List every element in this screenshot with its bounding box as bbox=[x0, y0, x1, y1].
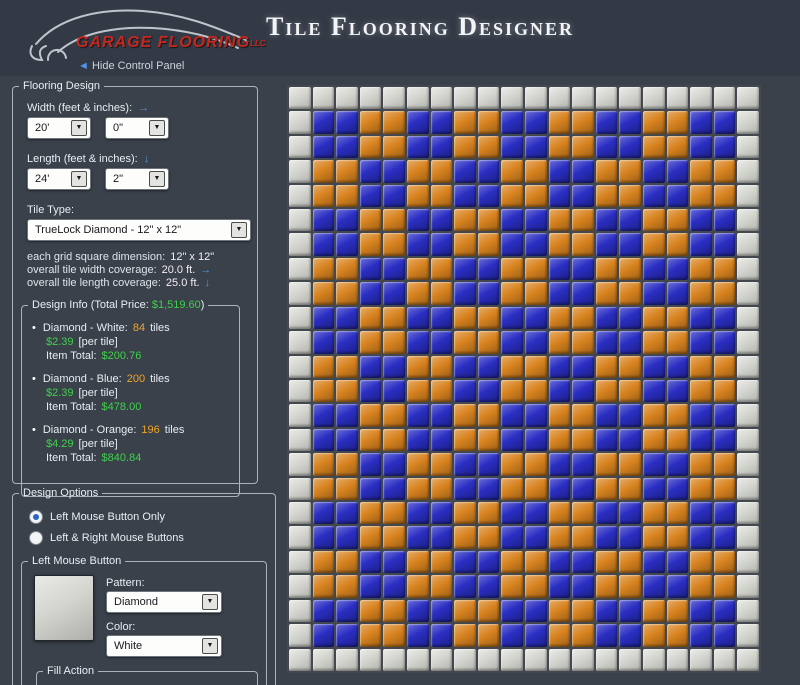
grid-tile-r9c1[interactable] bbox=[313, 307, 335, 329]
grid-tile-r8c0[interactable] bbox=[289, 282, 311, 304]
grid-tile-r8c11[interactable] bbox=[549, 282, 571, 304]
grid-tile-r19c18[interactable] bbox=[714, 551, 736, 573]
grid-tile-r4c10[interactable] bbox=[525, 185, 547, 207]
grid-tile-r11c16[interactable] bbox=[667, 356, 689, 378]
grid-tile-r8c10[interactable] bbox=[525, 282, 547, 304]
grid-tile-r13c16[interactable] bbox=[667, 404, 689, 426]
grid-tile-r8c14[interactable] bbox=[619, 282, 641, 304]
grid-tile-r14c10[interactable] bbox=[525, 429, 547, 451]
grid-tile-r22c11[interactable] bbox=[549, 624, 571, 646]
grid-tile-r18c3[interactable] bbox=[360, 526, 382, 548]
grid-tile-r14c8[interactable] bbox=[478, 429, 500, 451]
grid-tile-r16c10[interactable] bbox=[525, 478, 547, 500]
grid-tile-r22c9[interactable] bbox=[501, 624, 523, 646]
grid-tile-r9c14[interactable] bbox=[619, 307, 641, 329]
grid-tile-r20c10[interactable] bbox=[525, 575, 547, 597]
grid-tile-r12c2[interactable] bbox=[336, 380, 358, 402]
grid-tile-r6c8[interactable] bbox=[478, 233, 500, 255]
grid-tile-r7c7[interactable] bbox=[454, 258, 476, 280]
grid-tile-r0c14[interactable] bbox=[619, 87, 641, 109]
grid-tile-r0c1[interactable] bbox=[313, 87, 335, 109]
grid-tile-r11c0[interactable] bbox=[289, 356, 311, 378]
grid-tile-r3c13[interactable] bbox=[596, 160, 618, 182]
grid-tile-r4c8[interactable] bbox=[478, 185, 500, 207]
grid-tile-r6c5[interactable] bbox=[407, 233, 429, 255]
grid-tile-r0c15[interactable] bbox=[643, 87, 665, 109]
grid-tile-r18c1[interactable] bbox=[313, 526, 335, 548]
grid-tile-r4c1[interactable] bbox=[313, 185, 335, 207]
grid-tile-r23c11[interactable] bbox=[549, 649, 571, 671]
grid-tile-r9c8[interactable] bbox=[478, 307, 500, 329]
grid-tile-r20c18[interactable] bbox=[714, 575, 736, 597]
hide-control-panel-link[interactable]: ◄ Hide Control Panel bbox=[78, 60, 184, 72]
grid-tile-r13c19[interactable] bbox=[737, 404, 759, 426]
grid-tile-r9c3[interactable] bbox=[360, 307, 382, 329]
grid-tile-r1c4[interactable] bbox=[383, 111, 405, 133]
grid-tile-r19c19[interactable] bbox=[737, 551, 759, 573]
grid-tile-r8c4[interactable] bbox=[383, 282, 405, 304]
radio-button-icon[interactable] bbox=[29, 510, 43, 524]
grid-tile-r13c5[interactable] bbox=[407, 404, 429, 426]
grid-tile-r20c13[interactable] bbox=[596, 575, 618, 597]
grid-tile-r15c18[interactable] bbox=[714, 453, 736, 475]
grid-tile-r19c0[interactable] bbox=[289, 551, 311, 573]
grid-tile-r2c19[interactable] bbox=[737, 136, 759, 158]
grid-tile-r11c5[interactable] bbox=[407, 356, 429, 378]
grid-tile-r20c7[interactable] bbox=[454, 575, 476, 597]
grid-tile-r1c13[interactable] bbox=[596, 111, 618, 133]
grid-tile-r0c16[interactable] bbox=[667, 87, 689, 109]
grid-tile-r20c11[interactable] bbox=[549, 575, 571, 597]
grid-tile-r12c12[interactable] bbox=[572, 380, 594, 402]
grid-tile-r3c14[interactable] bbox=[619, 160, 641, 182]
grid-tile-r4c15[interactable] bbox=[643, 185, 665, 207]
grid-tile-r17c1[interactable] bbox=[313, 502, 335, 524]
grid-tile-r12c10[interactable] bbox=[525, 380, 547, 402]
grid-tile-r0c8[interactable] bbox=[478, 87, 500, 109]
grid-tile-r12c18[interactable] bbox=[714, 380, 736, 402]
grid-tile-r0c4[interactable] bbox=[383, 87, 405, 109]
grid-tile-r9c2[interactable] bbox=[336, 307, 358, 329]
grid-tile-r3c15[interactable] bbox=[643, 160, 665, 182]
grid-tile-r7c10[interactable] bbox=[525, 258, 547, 280]
grid-tile-r9c9[interactable] bbox=[501, 307, 523, 329]
grid-tile-r10c4[interactable] bbox=[383, 331, 405, 353]
grid-tile-r14c19[interactable] bbox=[737, 429, 759, 451]
grid-tile-r6c7[interactable] bbox=[454, 233, 476, 255]
grid-tile-r14c4[interactable] bbox=[383, 429, 405, 451]
grid-tile-r3c1[interactable] bbox=[313, 160, 335, 182]
grid-tile-r9c19[interactable] bbox=[737, 307, 759, 329]
grid-tile-r16c8[interactable] bbox=[478, 478, 500, 500]
grid-tile-r21c0[interactable] bbox=[289, 600, 311, 622]
grid-tile-r2c18[interactable] bbox=[714, 136, 736, 158]
grid-tile-r7c11[interactable] bbox=[549, 258, 571, 280]
grid-tile-r2c0[interactable] bbox=[289, 136, 311, 158]
grid-tile-r17c11[interactable] bbox=[549, 502, 571, 524]
grid-tile-r21c8[interactable] bbox=[478, 600, 500, 622]
grid-tile-r18c0[interactable] bbox=[289, 526, 311, 548]
grid-tile-r17c4[interactable] bbox=[383, 502, 405, 524]
grid-tile-r12c15[interactable] bbox=[643, 380, 665, 402]
grid-tile-r4c17[interactable] bbox=[690, 185, 712, 207]
grid-tile-r21c1[interactable] bbox=[313, 600, 335, 622]
grid-tile-r6c14[interactable] bbox=[619, 233, 641, 255]
grid-tile-r23c12[interactable] bbox=[572, 649, 594, 671]
grid-tile-r9c10[interactable] bbox=[525, 307, 547, 329]
grid-tile-r5c8[interactable] bbox=[478, 209, 500, 231]
grid-tile-r11c18[interactable] bbox=[714, 356, 736, 378]
grid-tile-r18c17[interactable] bbox=[690, 526, 712, 548]
grid-tile-r2c15[interactable] bbox=[643, 136, 665, 158]
grid-tile-r9c7[interactable] bbox=[454, 307, 476, 329]
grid-tile-r1c5[interactable] bbox=[407, 111, 429, 133]
length-feet-dropdown[interactable]: 24' ▼ bbox=[27, 168, 91, 190]
grid-tile-r2c1[interactable] bbox=[313, 136, 335, 158]
grid-tile-r11c3[interactable] bbox=[360, 356, 382, 378]
grid-tile-r22c13[interactable] bbox=[596, 624, 618, 646]
grid-tile-r4c4[interactable] bbox=[383, 185, 405, 207]
grid-tile-r19c17[interactable] bbox=[690, 551, 712, 573]
grid-tile-r12c16[interactable] bbox=[667, 380, 689, 402]
grid-tile-r1c1[interactable] bbox=[313, 111, 335, 133]
grid-tile-r10c0[interactable] bbox=[289, 331, 311, 353]
radio-left-right-mouse[interactable]: Left & Right Mouse Buttons bbox=[29, 531, 269, 545]
grid-tile-r14c17[interactable] bbox=[690, 429, 712, 451]
grid-tile-r0c6[interactable] bbox=[431, 87, 453, 109]
grid-tile-r11c11[interactable] bbox=[549, 356, 571, 378]
grid-tile-r5c3[interactable] bbox=[360, 209, 382, 231]
grid-tile-r13c7[interactable] bbox=[454, 404, 476, 426]
grid-tile-r3c10[interactable] bbox=[525, 160, 547, 182]
grid-tile-r13c4[interactable] bbox=[383, 404, 405, 426]
grid-tile-r18c5[interactable] bbox=[407, 526, 429, 548]
grid-tile-r13c1[interactable] bbox=[313, 404, 335, 426]
grid-tile-r14c15[interactable] bbox=[643, 429, 665, 451]
grid-tile-r5c6[interactable] bbox=[431, 209, 453, 231]
grid-tile-r19c2[interactable] bbox=[336, 551, 358, 573]
grid-tile-r11c2[interactable] bbox=[336, 356, 358, 378]
grid-tile-r2c2[interactable] bbox=[336, 136, 358, 158]
grid-tile-r16c6[interactable] bbox=[431, 478, 453, 500]
grid-tile-r11c7[interactable] bbox=[454, 356, 476, 378]
grid-tile-r17c9[interactable] bbox=[501, 502, 523, 524]
grid-tile-r16c19[interactable] bbox=[737, 478, 759, 500]
grid-tile-r15c12[interactable] bbox=[572, 453, 594, 475]
grid-tile-r21c5[interactable] bbox=[407, 600, 429, 622]
grid-tile-r15c6[interactable] bbox=[431, 453, 453, 475]
grid-tile-r14c18[interactable] bbox=[714, 429, 736, 451]
grid-tile-r5c14[interactable] bbox=[619, 209, 641, 231]
grid-tile-r7c19[interactable] bbox=[737, 258, 759, 280]
grid-tile-r15c0[interactable] bbox=[289, 453, 311, 475]
grid-tile-r3c18[interactable] bbox=[714, 160, 736, 182]
grid-tile-r4c16[interactable] bbox=[667, 185, 689, 207]
grid-tile-r23c16[interactable] bbox=[667, 649, 689, 671]
grid-tile-r7c12[interactable] bbox=[572, 258, 594, 280]
grid-tile-r20c9[interactable] bbox=[501, 575, 523, 597]
grid-tile-r14c14[interactable] bbox=[619, 429, 641, 451]
grid-tile-r9c6[interactable] bbox=[431, 307, 453, 329]
grid-tile-r13c17[interactable] bbox=[690, 404, 712, 426]
grid-tile-r11c19[interactable] bbox=[737, 356, 759, 378]
grid-tile-r6c17[interactable] bbox=[690, 233, 712, 255]
grid-tile-r4c6[interactable] bbox=[431, 185, 453, 207]
grid-tile-r20c15[interactable] bbox=[643, 575, 665, 597]
tile-type-dropdown[interactable]: TrueLock Diamond - 12" x 12" ▼ bbox=[27, 219, 251, 241]
grid-tile-r18c14[interactable] bbox=[619, 526, 641, 548]
grid-tile-r19c6[interactable] bbox=[431, 551, 453, 573]
grid-tile-r19c1[interactable] bbox=[313, 551, 335, 573]
grid-tile-r10c10[interactable] bbox=[525, 331, 547, 353]
grid-tile-r6c1[interactable] bbox=[313, 233, 335, 255]
grid-tile-r10c2[interactable] bbox=[336, 331, 358, 353]
grid-tile-r9c16[interactable] bbox=[667, 307, 689, 329]
grid-tile-r22c15[interactable] bbox=[643, 624, 665, 646]
grid-tile-r4c2[interactable] bbox=[336, 185, 358, 207]
grid-tile-r1c2[interactable] bbox=[336, 111, 358, 133]
grid-tile-r18c10[interactable] bbox=[525, 526, 547, 548]
grid-tile-r6c19[interactable] bbox=[737, 233, 759, 255]
grid-tile-r6c3[interactable] bbox=[360, 233, 382, 255]
grid-tile-r20c3[interactable] bbox=[360, 575, 382, 597]
grid-tile-r7c3[interactable] bbox=[360, 258, 382, 280]
grid-tile-r12c19[interactable] bbox=[737, 380, 759, 402]
grid-tile-r3c7[interactable] bbox=[454, 160, 476, 182]
grid-tile-r1c0[interactable] bbox=[289, 111, 311, 133]
grid-tile-r20c2[interactable] bbox=[336, 575, 358, 597]
grid-tile-r23c5[interactable] bbox=[407, 649, 429, 671]
grid-tile-r3c12[interactable] bbox=[572, 160, 594, 182]
grid-tile-r22c3[interactable] bbox=[360, 624, 382, 646]
grid-tile-r17c17[interactable] bbox=[690, 502, 712, 524]
grid-tile-r2c11[interactable] bbox=[549, 136, 571, 158]
grid-tile-r11c15[interactable] bbox=[643, 356, 665, 378]
grid-tile-r15c7[interactable] bbox=[454, 453, 476, 475]
grid-tile-r20c12[interactable] bbox=[572, 575, 594, 597]
grid-tile-r23c2[interactable] bbox=[336, 649, 358, 671]
grid-tile-r7c16[interactable] bbox=[667, 258, 689, 280]
grid-tile-r20c8[interactable] bbox=[478, 575, 500, 597]
grid-tile-r7c13[interactable] bbox=[596, 258, 618, 280]
grid-tile-r19c3[interactable] bbox=[360, 551, 382, 573]
pattern-dropdown[interactable]: Diamond ▼ bbox=[106, 591, 222, 613]
grid-tile-r6c0[interactable] bbox=[289, 233, 311, 255]
grid-tile-r11c12[interactable] bbox=[572, 356, 594, 378]
grid-tile-r16c12[interactable] bbox=[572, 478, 594, 500]
grid-tile-r6c6[interactable] bbox=[431, 233, 453, 255]
grid-tile-r20c0[interactable] bbox=[289, 575, 311, 597]
grid-tile-r3c4[interactable] bbox=[383, 160, 405, 182]
grid-tile-r5c9[interactable] bbox=[501, 209, 523, 231]
grid-tile-r2c12[interactable] bbox=[572, 136, 594, 158]
grid-tile-r10c14[interactable] bbox=[619, 331, 641, 353]
grid-tile-r4c7[interactable] bbox=[454, 185, 476, 207]
grid-tile-r18c16[interactable] bbox=[667, 526, 689, 548]
grid-tile-r14c5[interactable] bbox=[407, 429, 429, 451]
grid-tile-r7c2[interactable] bbox=[336, 258, 358, 280]
grid-tile-r10c12[interactable] bbox=[572, 331, 594, 353]
grid-tile-r6c9[interactable] bbox=[501, 233, 523, 255]
grid-tile-r5c4[interactable] bbox=[383, 209, 405, 231]
grid-tile-r13c6[interactable] bbox=[431, 404, 453, 426]
grid-tile-r4c12[interactable] bbox=[572, 185, 594, 207]
grid-tile-r7c1[interactable] bbox=[313, 258, 335, 280]
grid-tile-r19c13[interactable] bbox=[596, 551, 618, 573]
grid-tile-r18c15[interactable] bbox=[643, 526, 665, 548]
grid-tile-r7c15[interactable] bbox=[643, 258, 665, 280]
grid-tile-r9c0[interactable] bbox=[289, 307, 311, 329]
grid-tile-r2c3[interactable] bbox=[360, 136, 382, 158]
grid-tile-r21c16[interactable] bbox=[667, 600, 689, 622]
width-inches-dropdown[interactable]: 0" ▼ bbox=[105, 117, 169, 139]
grid-tile-r1c9[interactable] bbox=[501, 111, 523, 133]
grid-tile-r9c13[interactable] bbox=[596, 307, 618, 329]
grid-tile-r18c11[interactable] bbox=[549, 526, 571, 548]
dropdown-arrow-icon[interactable]: ▼ bbox=[202, 638, 218, 654]
grid-tile-r12c0[interactable] bbox=[289, 380, 311, 402]
grid-tile-r22c0[interactable] bbox=[289, 624, 311, 646]
grid-tile-r14c2[interactable] bbox=[336, 429, 358, 451]
grid-tile-r17c2[interactable] bbox=[336, 502, 358, 524]
grid-tile-r15c17[interactable] bbox=[690, 453, 712, 475]
grid-tile-r11c13[interactable] bbox=[596, 356, 618, 378]
grid-tile-r7c0[interactable] bbox=[289, 258, 311, 280]
grid-tile-r15c2[interactable] bbox=[336, 453, 358, 475]
grid-tile-r3c5[interactable] bbox=[407, 160, 429, 182]
grid-tile-r5c16[interactable] bbox=[667, 209, 689, 231]
grid-tile-r22c17[interactable] bbox=[690, 624, 712, 646]
grid-tile-r22c6[interactable] bbox=[431, 624, 453, 646]
grid-tile-r7c4[interactable] bbox=[383, 258, 405, 280]
grid-tile-r17c16[interactable] bbox=[667, 502, 689, 524]
grid-tile-r13c3[interactable] bbox=[360, 404, 382, 426]
grid-tile-r10c13[interactable] bbox=[596, 331, 618, 353]
grid-tile-r22c7[interactable] bbox=[454, 624, 476, 646]
grid-tile-r14c12[interactable] bbox=[572, 429, 594, 451]
grid-tile-r16c15[interactable] bbox=[643, 478, 665, 500]
grid-tile-r0c2[interactable] bbox=[336, 87, 358, 109]
grid-tile-r10c1[interactable] bbox=[313, 331, 335, 353]
grid-tile-r8c8[interactable] bbox=[478, 282, 500, 304]
grid-tile-r15c14[interactable] bbox=[619, 453, 641, 475]
grid-tile-r4c14[interactable] bbox=[619, 185, 641, 207]
grid-tile-r14c16[interactable] bbox=[667, 429, 689, 451]
grid-tile-r1c15[interactable] bbox=[643, 111, 665, 133]
grid-tile-r1c12[interactable] bbox=[572, 111, 594, 133]
grid-tile-r16c17[interactable] bbox=[690, 478, 712, 500]
grid-tile-r5c5[interactable] bbox=[407, 209, 429, 231]
grid-tile-r8c16[interactable] bbox=[667, 282, 689, 304]
grid-tile-r23c8[interactable] bbox=[478, 649, 500, 671]
dropdown-arrow-icon[interactable]: ▼ bbox=[71, 171, 87, 187]
grid-tile-r8c15[interactable] bbox=[643, 282, 665, 304]
grid-tile-r11c1[interactable] bbox=[313, 356, 335, 378]
grid-tile-r17c5[interactable] bbox=[407, 502, 429, 524]
grid-tile-r15c15[interactable] bbox=[643, 453, 665, 475]
grid-tile-r18c2[interactable] bbox=[336, 526, 358, 548]
grid-tile-r0c5[interactable] bbox=[407, 87, 429, 109]
grid-tile-r18c13[interactable] bbox=[596, 526, 618, 548]
grid-tile-r2c8[interactable] bbox=[478, 136, 500, 158]
grid-tile-r13c8[interactable] bbox=[478, 404, 500, 426]
grid-tile-r5c17[interactable] bbox=[690, 209, 712, 231]
grid-tile-r13c9[interactable] bbox=[501, 404, 523, 426]
grid-tile-r2c5[interactable] bbox=[407, 136, 429, 158]
grid-tile-r15c4[interactable] bbox=[383, 453, 405, 475]
grid-tile-r6c4[interactable] bbox=[383, 233, 405, 255]
grid-tile-r8c2[interactable] bbox=[336, 282, 358, 304]
grid-tile-r16c9[interactable] bbox=[501, 478, 523, 500]
grid-tile-r1c16[interactable] bbox=[667, 111, 689, 133]
grid-tile-r19c5[interactable] bbox=[407, 551, 429, 573]
grid-tile-r22c16[interactable] bbox=[667, 624, 689, 646]
grid-tile-r21c10[interactable] bbox=[525, 600, 547, 622]
grid-tile-r20c6[interactable] bbox=[431, 575, 453, 597]
grid-tile-r10c19[interactable] bbox=[737, 331, 759, 353]
grid-tile-r17c0[interactable] bbox=[289, 502, 311, 524]
grid-tile-r3c19[interactable] bbox=[737, 160, 759, 182]
grid-tile-r6c10[interactable] bbox=[525, 233, 547, 255]
grid-tile-r11c10[interactable] bbox=[525, 356, 547, 378]
grid-tile-r2c13[interactable] bbox=[596, 136, 618, 158]
grid-tile-r23c10[interactable] bbox=[525, 649, 547, 671]
grid-tile-r12c13[interactable] bbox=[596, 380, 618, 402]
grid-tile-r5c15[interactable] bbox=[643, 209, 665, 231]
grid-tile-r0c10[interactable] bbox=[525, 87, 547, 109]
grid-tile-r12c14[interactable] bbox=[619, 380, 641, 402]
grid-tile-r12c9[interactable] bbox=[501, 380, 523, 402]
grid-tile-r3c8[interactable] bbox=[478, 160, 500, 182]
radio-button-icon[interactable] bbox=[29, 531, 43, 545]
grid-tile-r18c9[interactable] bbox=[501, 526, 523, 548]
grid-tile-r0c18[interactable] bbox=[714, 87, 736, 109]
grid-tile-r5c11[interactable] bbox=[549, 209, 571, 231]
grid-tile-r17c10[interactable] bbox=[525, 502, 547, 524]
grid-tile-r18c18[interactable] bbox=[714, 526, 736, 548]
grid-tile-r23c3[interactable] bbox=[360, 649, 382, 671]
grid-tile-r10c3[interactable] bbox=[360, 331, 382, 353]
grid-tile-r15c1[interactable] bbox=[313, 453, 335, 475]
grid-tile-r4c9[interactable] bbox=[501, 185, 523, 207]
grid-tile-r8c13[interactable] bbox=[596, 282, 618, 304]
grid-tile-r17c3[interactable] bbox=[360, 502, 382, 524]
grid-tile-r5c12[interactable] bbox=[572, 209, 594, 231]
grid-tile-r14c0[interactable] bbox=[289, 429, 311, 451]
grid-tile-r19c9[interactable] bbox=[501, 551, 523, 573]
grid-tile-r1c14[interactable] bbox=[619, 111, 641, 133]
grid-tile-r10c11[interactable] bbox=[549, 331, 571, 353]
grid-tile-r4c19[interactable] bbox=[737, 185, 759, 207]
grid-tile-r23c0[interactable] bbox=[289, 649, 311, 671]
grid-tile-r9c12[interactable] bbox=[572, 307, 594, 329]
grid-tile-r2c4[interactable] bbox=[383, 136, 405, 158]
grid-tile-r2c16[interactable] bbox=[667, 136, 689, 158]
grid-tile-r16c3[interactable] bbox=[360, 478, 382, 500]
grid-tile-r16c14[interactable] bbox=[619, 478, 641, 500]
grid-tile-r6c11[interactable] bbox=[549, 233, 571, 255]
grid-tile-r16c4[interactable] bbox=[383, 478, 405, 500]
grid-tile-r22c5[interactable] bbox=[407, 624, 429, 646]
grid-tile-r18c6[interactable] bbox=[431, 526, 453, 548]
grid-tile-r23c15[interactable] bbox=[643, 649, 665, 671]
grid-tile-r10c16[interactable] bbox=[667, 331, 689, 353]
grid-tile-r2c9[interactable] bbox=[501, 136, 523, 158]
grid-tile-r1c8[interactable] bbox=[478, 111, 500, 133]
grid-tile-r2c6[interactable] bbox=[431, 136, 453, 158]
grid-tile-r18c4[interactable] bbox=[383, 526, 405, 548]
grid-tile-r11c17[interactable] bbox=[690, 356, 712, 378]
